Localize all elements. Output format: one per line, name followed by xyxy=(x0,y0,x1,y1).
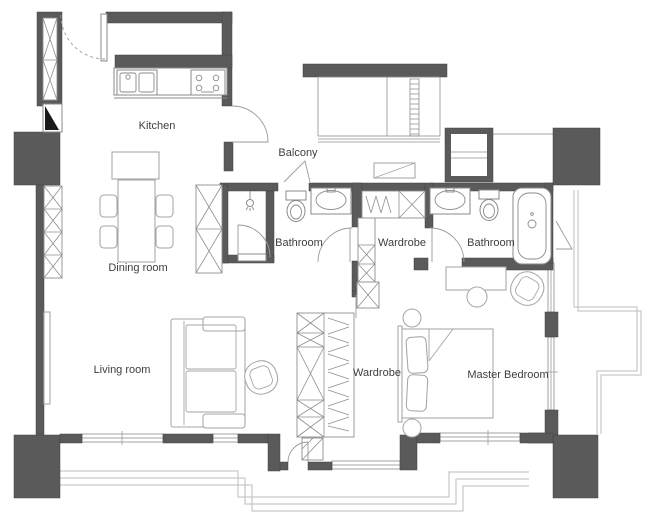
dining-chair xyxy=(100,226,117,248)
dining-chair xyxy=(100,195,117,217)
room-label-living-room: Living room xyxy=(94,364,151,376)
nightstand xyxy=(403,419,421,437)
entry-shoe-cabinet xyxy=(43,18,57,100)
bathtub xyxy=(513,188,551,264)
room-label-master-bedroom: Master Bedroom xyxy=(467,369,548,381)
dining-chair xyxy=(156,226,173,248)
room-label-wardrobe-1: Wardrobe xyxy=(378,237,426,249)
niche-closet xyxy=(302,438,323,460)
room-label-kitchen: Kitchen xyxy=(139,120,176,132)
room-label-bathroom-1: Bathroom xyxy=(275,237,323,249)
bedroom-wardrobe-cabinet xyxy=(297,313,354,437)
toilet-2 xyxy=(479,190,499,221)
floor-plan-canvas: Kitchen Balcony Dining room Bathroom War… xyxy=(0,0,660,528)
sofa xyxy=(171,317,245,428)
kitchen-counter xyxy=(114,68,227,98)
pillow xyxy=(406,375,428,412)
left-wall-cabinet xyxy=(44,186,62,278)
pillow xyxy=(406,336,428,373)
dining-chair xyxy=(156,195,173,217)
stool xyxy=(467,287,487,307)
wash-basin-1 xyxy=(311,188,351,214)
room-label-dining-room: Dining room xyxy=(108,262,167,274)
room-label-wardrobe-2: Wardrobe xyxy=(353,367,401,379)
tv-panel xyxy=(44,312,50,404)
nightstand xyxy=(403,309,421,327)
kitchen-sink xyxy=(117,70,157,95)
floor-plan: Kitchen Balcony Dining room Bathroom War… xyxy=(0,0,660,528)
room-label-bathroom-2: Bathroom xyxy=(467,237,515,249)
sideboard xyxy=(112,152,159,179)
toilet-1 xyxy=(286,191,306,222)
room-label-balcony: Balcony xyxy=(278,147,318,159)
stove xyxy=(191,70,225,95)
wash-basin-2 xyxy=(430,188,470,214)
dining-side-cabinet xyxy=(196,185,222,273)
balcony-bench xyxy=(374,163,415,178)
dining-table xyxy=(118,180,155,262)
entry-appliance xyxy=(43,104,62,132)
